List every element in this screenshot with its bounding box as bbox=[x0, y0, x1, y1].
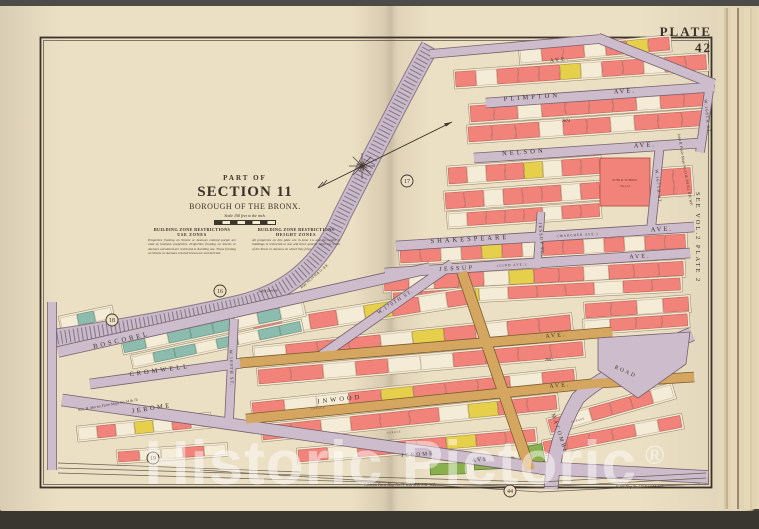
building bbox=[623, 59, 644, 75]
building bbox=[566, 282, 595, 295]
zone-use-body: Properties fronting on Streets or Avenue… bbox=[148, 238, 236, 255]
building bbox=[539, 65, 560, 81]
building bbox=[610, 115, 634, 132]
plate-ref-number: 18 bbox=[109, 318, 115, 324]
building bbox=[508, 286, 537, 299]
scale-bar bbox=[214, 220, 276, 225]
zone-height-subheading: HEIGHT ZONES bbox=[252, 232, 340, 237]
building bbox=[637, 299, 663, 315]
building bbox=[580, 182, 600, 199]
see-reference: SEE VOL.2 PLATE 2 bbox=[694, 192, 701, 288]
building bbox=[527, 395, 557, 412]
building bbox=[581, 203, 600, 217]
building bbox=[636, 316, 662, 330]
title-section: SECTION 11 bbox=[183, 183, 307, 202]
building bbox=[659, 261, 684, 276]
building bbox=[594, 281, 623, 294]
building bbox=[518, 66, 539, 82]
zone-height-body: All properties on this plate are in zone… bbox=[252, 238, 340, 251]
building bbox=[550, 342, 583, 359]
watermark-text: Historic Pictoric bbox=[145, 429, 637, 498]
building bbox=[420, 353, 453, 370]
public-school-building bbox=[600, 158, 650, 206]
building bbox=[587, 117, 611, 134]
title-part-of: PART OF bbox=[183, 174, 307, 183]
building bbox=[645, 235, 665, 250]
building bbox=[543, 160, 562, 177]
public-school-label: No.114 bbox=[620, 184, 630, 188]
building bbox=[665, 234, 685, 249]
building bbox=[539, 120, 563, 137]
street-label-ave: AVE. bbox=[629, 253, 650, 260]
building bbox=[464, 190, 484, 207]
building bbox=[537, 284, 566, 297]
building bbox=[439, 404, 469, 421]
building bbox=[323, 362, 356, 379]
building bbox=[509, 269, 534, 284]
building bbox=[448, 213, 467, 227]
public-school-label: PUBLIC SCHOOL bbox=[613, 178, 638, 182]
building bbox=[584, 238, 604, 253]
macombs-plaza bbox=[598, 332, 690, 398]
building bbox=[581, 157, 600, 174]
building bbox=[497, 68, 518, 84]
building bbox=[388, 356, 421, 373]
registered-mark-icon: ® bbox=[645, 440, 665, 470]
zone-note-use: BUILDING ZONE RESTRICTIONS USE ZONES Pro… bbox=[148, 227, 236, 255]
building bbox=[559, 267, 584, 282]
building bbox=[611, 300, 637, 316]
building bbox=[467, 211, 486, 225]
building bbox=[524, 161, 543, 178]
map-title: PART OF SECTION 11 BOROUGH OF THE BRONX.… bbox=[183, 174, 307, 225]
building bbox=[534, 268, 559, 283]
building bbox=[468, 401, 498, 418]
building bbox=[581, 62, 602, 78]
building bbox=[663, 297, 689, 313]
building bbox=[610, 317, 636, 331]
building bbox=[502, 243, 522, 258]
building bbox=[448, 167, 467, 184]
building bbox=[467, 165, 486, 182]
title-scale-note: Scale 100 feet to the inch. bbox=[183, 213, 307, 218]
photo-bottom-shadow bbox=[0, 511, 759, 529]
block-number: 2667 bbox=[545, 357, 553, 362]
building bbox=[652, 278, 681, 291]
building bbox=[562, 205, 581, 219]
zone-use-subheading: USE ZONES bbox=[148, 232, 236, 237]
building bbox=[602, 60, 623, 76]
title-borough: BOROUGH OF THE BRONX. bbox=[183, 202, 307, 212]
plate-ref-number: 17 bbox=[404, 179, 410, 185]
building bbox=[543, 206, 562, 220]
building bbox=[604, 237, 624, 252]
building bbox=[453, 350, 486, 367]
building bbox=[542, 185, 562, 202]
street-label-ave: AVE. bbox=[651, 225, 673, 233]
building bbox=[380, 411, 410, 428]
block-number: 2674 bbox=[562, 118, 570, 123]
building bbox=[522, 186, 542, 203]
building bbox=[634, 263, 659, 278]
building bbox=[563, 239, 583, 254]
building bbox=[409, 408, 439, 425]
building bbox=[461, 245, 481, 260]
watermark: Historic Pictoric® bbox=[90, 428, 720, 499]
atlas-photo: PLIMPTONAVE.NELSONAVE.SHAKESPEARE(MARCHE… bbox=[0, 0, 759, 529]
building bbox=[585, 302, 611, 318]
building bbox=[609, 264, 634, 279]
plate-ref-number: 16 bbox=[217, 289, 223, 295]
building bbox=[355, 359, 388, 376]
building bbox=[515, 122, 539, 139]
building bbox=[623, 279, 652, 292]
building bbox=[634, 114, 658, 131]
building bbox=[505, 163, 524, 180]
building bbox=[561, 184, 581, 201]
building bbox=[624, 236, 644, 251]
building bbox=[290, 364, 323, 381]
zone-note-height: BUILDING ZONE RESTRICTIONS HEIGHT ZONES … bbox=[252, 227, 340, 251]
building bbox=[560, 63, 581, 79]
building bbox=[445, 192, 465, 209]
building bbox=[662, 314, 688, 328]
building bbox=[476, 69, 497, 85]
building bbox=[486, 210, 505, 224]
building bbox=[484, 189, 504, 206]
building bbox=[539, 315, 571, 333]
building bbox=[484, 270, 509, 285]
building bbox=[455, 71, 476, 87]
building bbox=[492, 124, 516, 141]
building bbox=[479, 287, 508, 300]
building bbox=[505, 209, 524, 223]
building bbox=[584, 265, 609, 280]
building bbox=[482, 244, 502, 259]
building bbox=[658, 112, 682, 129]
building bbox=[503, 188, 523, 205]
survey-note: John Devoe bbox=[258, 287, 278, 293]
building bbox=[486, 164, 505, 181]
building bbox=[258, 367, 291, 384]
plate-label: PLATE 42 bbox=[640, 24, 712, 56]
building bbox=[468, 125, 492, 142]
building bbox=[562, 159, 581, 176]
